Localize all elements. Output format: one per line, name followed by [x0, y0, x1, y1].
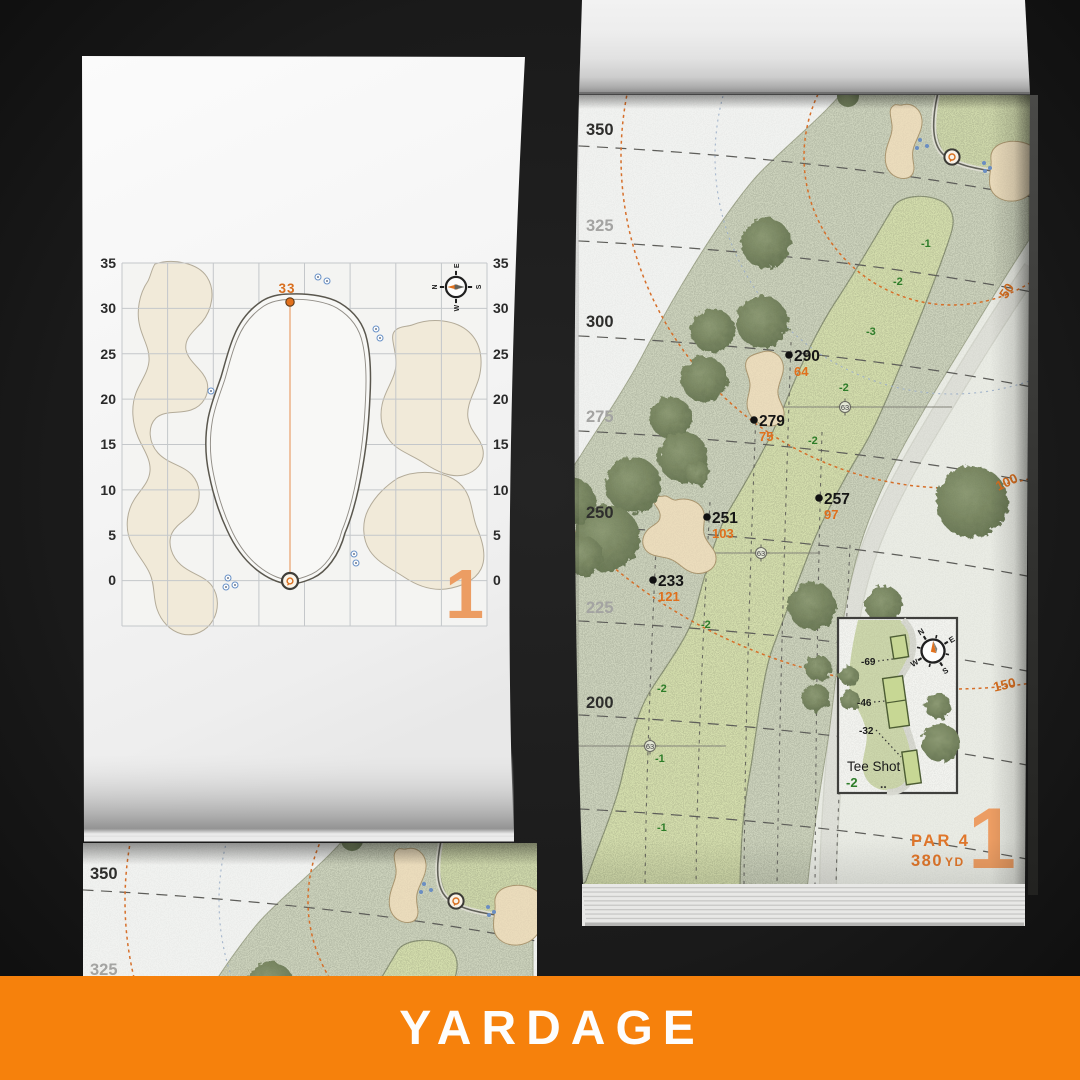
svg-text:25: 25 [100, 346, 116, 362]
svg-text:35: 35 [493, 255, 509, 271]
svg-text:Tee Shot: Tee Shot [847, 759, 901, 774]
svg-text:20: 20 [100, 391, 116, 407]
svg-text:YARDAGE: YARDAGE [399, 1002, 705, 1055]
svg-text:30: 30 [100, 300, 116, 316]
svg-text:-46: -46 [857, 698, 872, 709]
svg-text:N: N [432, 284, 439, 289]
svg-text:0: 0 [108, 572, 116, 588]
svg-text:S: S [476, 284, 483, 289]
svg-text:W: W [454, 304, 461, 311]
svg-text:1: 1 [445, 555, 484, 633]
svg-text:15: 15 [493, 436, 509, 452]
svg-text:35: 35 [100, 255, 116, 271]
svg-text:..: .. [880, 777, 887, 791]
svg-text:25: 25 [493, 346, 509, 362]
svg-text:10: 10 [493, 482, 509, 498]
svg-text:5: 5 [493, 527, 501, 543]
svg-text:30: 30 [493, 300, 509, 316]
svg-text:E: E [454, 263, 461, 268]
svg-text:5: 5 [108, 527, 116, 543]
svg-text:0: 0 [493, 572, 501, 588]
svg-text:20: 20 [493, 391, 509, 407]
svg-text:33: 33 [278, 281, 295, 296]
svg-text:10: 10 [100, 482, 116, 498]
svg-text:-69: -69 [861, 657, 876, 668]
svg-text:15: 15 [100, 436, 116, 452]
svg-text:-32: -32 [859, 726, 874, 737]
svg-text:-2: -2 [846, 775, 858, 790]
